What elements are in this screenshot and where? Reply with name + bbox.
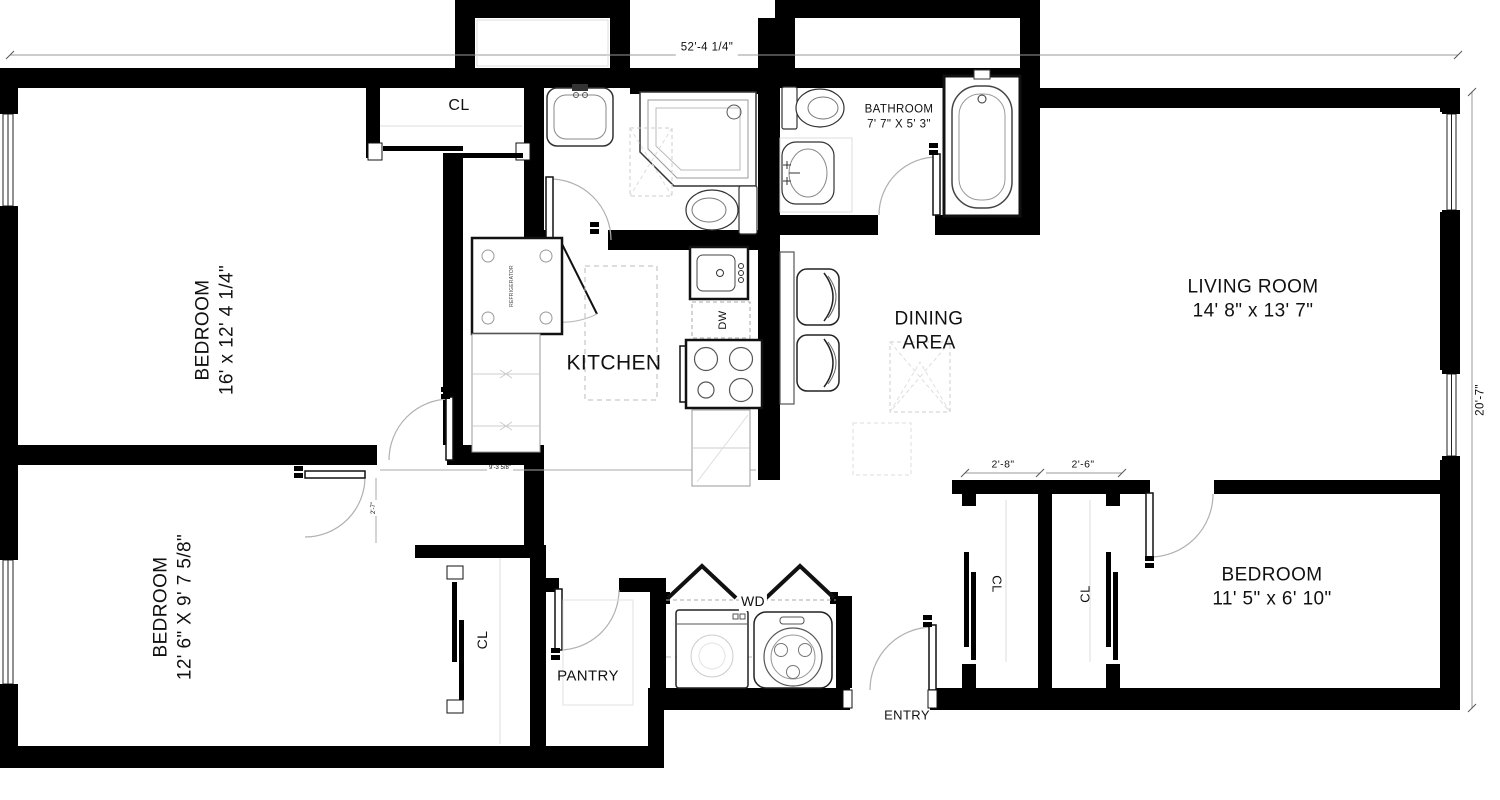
window-left-bedroom2 — [0, 554, 18, 690]
label-closet-entry-right: CL — [1078, 585, 1095, 602]
sliding-door-bed2-closet — [447, 566, 464, 713]
room-label-living: LIVING ROOM 14' 8" x 13' 7" — [1187, 276, 1318, 325]
label-closet-entry-left: CL — [988, 575, 1005, 592]
living-size: 14' 8" x 13' 7" — [1187, 300, 1318, 324]
room-label-bedroom3: BEDROOM 11' 5" x 6' 10" — [1212, 564, 1331, 613]
kitchen-island-dashed — [585, 266, 657, 400]
dining-line1: DINING — [895, 309, 964, 330]
bedroom1-name: BEDROOM — [193, 280, 214, 381]
room-label-entry: ENTRY — [884, 708, 930, 725]
bar-stool-2 — [797, 335, 839, 391]
room-label-dining: DINING AREA — [895, 308, 964, 357]
laundry-fixtures — [666, 610, 836, 688]
sliding-door-entry-closet2 — [1106, 552, 1118, 660]
room-label-pantry: PANTRY — [557, 666, 619, 685]
bathroom1-sink — [547, 84, 613, 146]
bedroom1-size: 16' x 12' 4 1/4" — [216, 265, 240, 395]
entry-jamb-right — [928, 690, 937, 708]
dryer — [754, 612, 832, 688]
bedroom2-name: BEDROOM — [151, 557, 172, 658]
dining-line2: AREA — [895, 332, 964, 356]
bathroom2-fixtures — [780, 70, 1020, 216]
bedroom3-name: BEDROOM — [1222, 565, 1323, 586]
door-bedroom3 — [1146, 493, 1213, 557]
room-label-bathroom: BATHROOM 7' 7" X 5' 3" — [865, 102, 934, 131]
bar-stool-1 — [797, 269, 839, 325]
washer — [676, 610, 748, 688]
living-name: LIVING ROOM — [1187, 277, 1318, 298]
room-label-kitchen: KITCHEN — [567, 351, 662, 378]
pantry-shelf-outline — [563, 600, 633, 705]
label-refrigerator: REFRIGERATOR — [509, 265, 515, 307]
dim-door-offset: 2'-7" — [371, 500, 379, 516]
refrigerator — [472, 238, 562, 334]
dim-overall-width: 52'-4 1/4" — [676, 41, 738, 56]
label-washer-dryer: WD — [739, 593, 767, 611]
window-right-upper — [1442, 108, 1460, 216]
bathroom2-toilet — [782, 87, 844, 129]
kitchen-counter-bottom — [692, 410, 750, 486]
dim-overall-depth: 20'-7" — [1474, 379, 1489, 421]
dining-table-dashed — [853, 342, 950, 475]
dim-kitchen-passage: 9'-3 5/8" — [487, 465, 513, 473]
dim-entry-closet-right: 2'-6" — [1069, 458, 1098, 471]
label-closet-top: CL — [448, 96, 469, 116]
bedroom2-size: 12' 6" X 9' 7 5/8" — [174, 534, 198, 680]
entry-jamb-left — [843, 690, 852, 708]
niche-outline — [477, 20, 608, 66]
bathroom1-toilet — [686, 186, 757, 234]
label-closet-bedroom2: CL — [474, 631, 492, 650]
bathroom-size: 7' 7" X 5' 3" — [865, 117, 934, 132]
door-bedroom1 — [389, 397, 453, 460]
door-bathroom2 — [879, 154, 940, 215]
bedroom3-size: 11' 5" x 6' 10" — [1212, 588, 1331, 612]
label-dishwasher: DW — [716, 309, 730, 330]
room-label-bedroom2: BEDROOM 12' 6" X 9' 7 5/8" — [150, 534, 199, 680]
door-bathroom1 — [546, 177, 611, 240]
sliding-door-top-closet — [368, 143, 530, 160]
stove — [680, 340, 762, 408]
fixtures-layer — [0, 0, 1500, 800]
door-entry — [870, 625, 936, 690]
bathtub — [944, 70, 1020, 216]
room-label-bedroom1: BEDROOM 16' x 12' 4 1/4" — [192, 265, 241, 395]
door-bedroom2 — [305, 471, 365, 537]
window-right-living — [1442, 368, 1460, 462]
bathroom2-sink — [780, 138, 852, 212]
floor-plan: 52'-4 1/4" 20'-7" BEDROOM 16' x 12' 4 1/… — [0, 0, 1500, 800]
window-left-bedroom1 — [0, 108, 18, 212]
door-pantry — [555, 589, 619, 650]
bar-counter — [780, 252, 794, 404]
kitchen-counter-left — [472, 334, 540, 452]
kitchen-sink — [690, 247, 748, 299]
sliding-door-entry-closet1 — [964, 552, 976, 660]
bathroom-name: BATHROOM — [865, 103, 934, 115]
dim-entry-closet-left: 2'-8" — [989, 458, 1018, 471]
